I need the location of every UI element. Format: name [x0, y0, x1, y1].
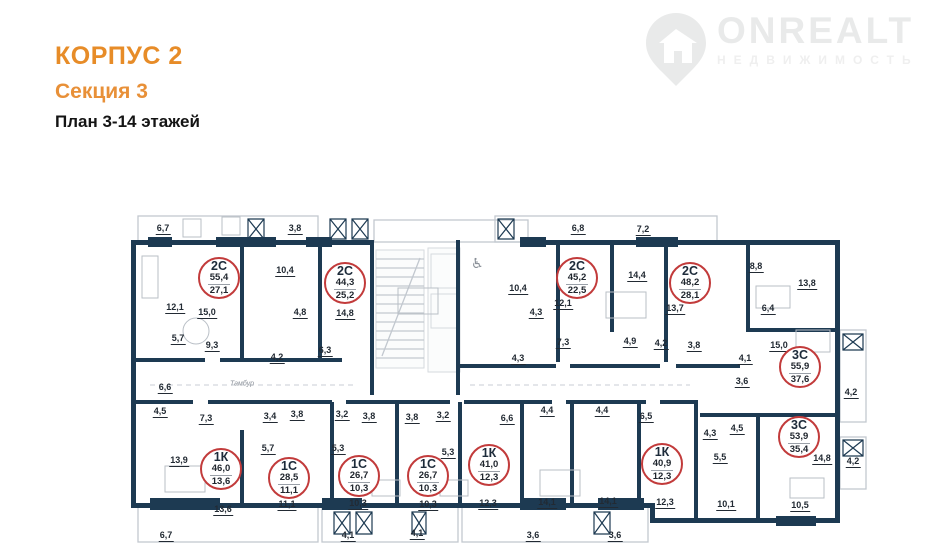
room-area-label: 3,2 — [335, 409, 350, 419]
plan-labels-layer: 6,73,86,87,210,412,115,04,814,85,79,34,2… — [0, 0, 941, 550]
room-area-label: 3,8 — [405, 412, 420, 422]
apartment-total-area: 41,0 — [478, 460, 501, 472]
room-area-label: 3,8 — [362, 411, 377, 421]
apartment-living-area: 12,3 — [653, 472, 672, 482]
apartment-total-area: 26,7 — [348, 471, 371, 483]
apartment-living-area: 28,1 — [681, 291, 700, 301]
apartment-badge[interactable]: 2С 44,3 25,2 — [324, 262, 366, 304]
room-area-label: 14,1 — [598, 496, 618, 506]
apartment-living-area: 10,3 — [419, 484, 438, 494]
apartment-badge[interactable]: 3С 55,9 37,6 — [779, 346, 821, 388]
room-area-label: 4,4 — [595, 405, 610, 415]
apartment-badge[interactable]: 1С 28,5 11,1 — [268, 457, 310, 499]
room-area-label: 13,8 — [797, 278, 817, 288]
apartment-living-area: 11,1 — [280, 486, 298, 496]
room-area-label: 11,1 — [277, 499, 296, 509]
room-area-label: 5,7 — [171, 333, 186, 343]
room-area-label: 13,6 — [213, 504, 233, 514]
apartment-badge[interactable]: 1К 46,0 13,6 — [200, 448, 242, 490]
room-area-label: 4,5 — [730, 423, 745, 433]
apartment-total-area: 45,2 — [566, 273, 589, 285]
room-area-label: 4,3 — [511, 353, 526, 363]
room-area-label: 3,8 — [290, 409, 305, 419]
room-area-label: 3,2 — [436, 410, 451, 420]
apartment-badge[interactable]: 2С 55,4 27,1 — [198, 257, 240, 299]
apartment-living-area: 22,5 — [568, 286, 587, 296]
room-area-label: 4,2 — [654, 338, 669, 348]
apartment-living-area: 25,2 — [336, 291, 355, 301]
room-area-label: 5,7 — [261, 443, 276, 453]
apartment-badge[interactable]: 2С 48,2 28,1 — [669, 262, 711, 304]
room-area-label: 10,4 — [508, 283, 528, 293]
room-area-label: 10,3 — [418, 499, 438, 509]
apartment-total-area: 55,4 — [208, 273, 231, 285]
room-area-label: 15,0 — [769, 340, 789, 350]
room-area-label: 3,8 — [288, 223, 303, 233]
room-area-label: 10,1 — [716, 499, 736, 509]
room-area-label: 13,7 — [665, 303, 685, 313]
room-area-label: 3,6 — [608, 530, 623, 540]
room-area-label: 4,1 — [410, 528, 425, 538]
room-area-label: 5,3 — [441, 447, 456, 457]
apartment-total-area: 53,9 — [788, 432, 811, 444]
room-area-label: 14,8 — [335, 308, 355, 318]
apartment-total-area: 26,7 — [417, 471, 440, 483]
apartment-total-area: 55,9 — [789, 362, 812, 374]
room-area-label: 14,4 — [627, 270, 647, 280]
room-area-label: 3,6 — [526, 530, 541, 540]
room-area-label: 7,3 — [556, 337, 571, 347]
room-area-label: 5,5 — [713, 452, 728, 462]
room-area-label: 4,5 — [153, 406, 168, 416]
room-area-label: 7,3 — [199, 413, 214, 423]
room-area-label: 4,9 — [623, 336, 638, 346]
room-area-label: 5,3 — [331, 443, 346, 453]
room-area-label: 7,2 — [636, 224, 651, 234]
apartment-badge[interactable]: 1К 40,9 12,3 — [641, 443, 683, 485]
room-area-label: 10,3 — [348, 498, 368, 508]
room-area-label: 6,6 — [500, 413, 515, 423]
room-area-label: 6,3 — [318, 345, 333, 355]
room-area-label: 4,3 — [703, 428, 718, 438]
apartment-living-area: 37,6 — [791, 375, 810, 385]
room-area-label: 4,4 — [540, 405, 555, 415]
room-area-label: 6,7 — [156, 223, 171, 233]
room-area-label: 3,6 — [735, 376, 750, 386]
room-area-label: 14,1 — [537, 497, 557, 507]
room-area-label: 6,8 — [571, 223, 586, 233]
room-area-label: 6,4 — [761, 303, 776, 313]
apartment-living-area: 13,6 — [212, 477, 231, 487]
room-area-label: 4,2 — [270, 352, 285, 362]
room-area-label: 10,5 — [790, 500, 810, 510]
floor-plan-page: ONREALT НЕДВИЖИМОСТЬ КОРПУС 2 Секция 3 П… — [0, 0, 941, 550]
apartment-living-area: 10,3 — [350, 484, 369, 494]
apartment-living-area: 12,3 — [480, 473, 499, 483]
room-area-label: 13,9 — [169, 455, 189, 465]
room-area-label: 10,4 — [275, 265, 295, 275]
room-area-label: 4,8 — [293, 307, 308, 317]
room-area-label: 12,3 — [655, 497, 675, 507]
apartment-badge[interactable]: 1С 26,7 10,3 — [338, 455, 380, 497]
apartment-living-area: 35,4 — [790, 445, 809, 455]
apartment-total-area: 48,2 — [679, 278, 702, 290]
room-area-label: 6,5 — [639, 411, 654, 421]
room-area-label: 4,2 — [846, 456, 861, 466]
room-area-label: 4,1 — [738, 353, 753, 363]
room-area-label: 8,8 — [749, 261, 764, 271]
apartment-badge[interactable]: 2С 45,2 22,5 — [556, 257, 598, 299]
room-area-label: 9,3 — [205, 340, 220, 350]
room-name-label: Тамбур — [230, 381, 254, 388]
room-area-label: 12,1 — [553, 298, 573, 308]
apartment-total-area: 44,3 — [334, 278, 357, 290]
apartment-total-area: 40,9 — [651, 459, 674, 471]
room-area-label: 12,3 — [478, 498, 498, 508]
apartment-badge[interactable]: 3С 53,9 35,4 — [778, 416, 820, 458]
room-area-label: 4,2 — [844, 387, 859, 397]
room-area-label: 4,3 — [529, 307, 544, 317]
room-area-label: 6,7 — [159, 530, 174, 540]
apartment-living-area: 27,1 — [210, 286, 229, 296]
apartment-badge[interactable]: 1К 41,0 12,3 — [468, 444, 510, 486]
room-area-label: 6,6 — [158, 382, 173, 392]
apartment-total-area: 46,0 — [210, 464, 233, 476]
room-area-label: 15,0 — [197, 307, 217, 317]
room-area-label: 12,1 — [165, 302, 185, 312]
room-area-label: 3,4 — [263, 411, 278, 421]
room-area-label: 4,1 — [341, 530, 356, 540]
room-area-label: 14,8 — [812, 453, 832, 463]
room-area-label: 3,8 — [687, 340, 702, 350]
apartment-badge[interactable]: 1С 26,7 10,3 — [407, 455, 449, 497]
apartment-total-area: 28,5 — [278, 473, 301, 485]
